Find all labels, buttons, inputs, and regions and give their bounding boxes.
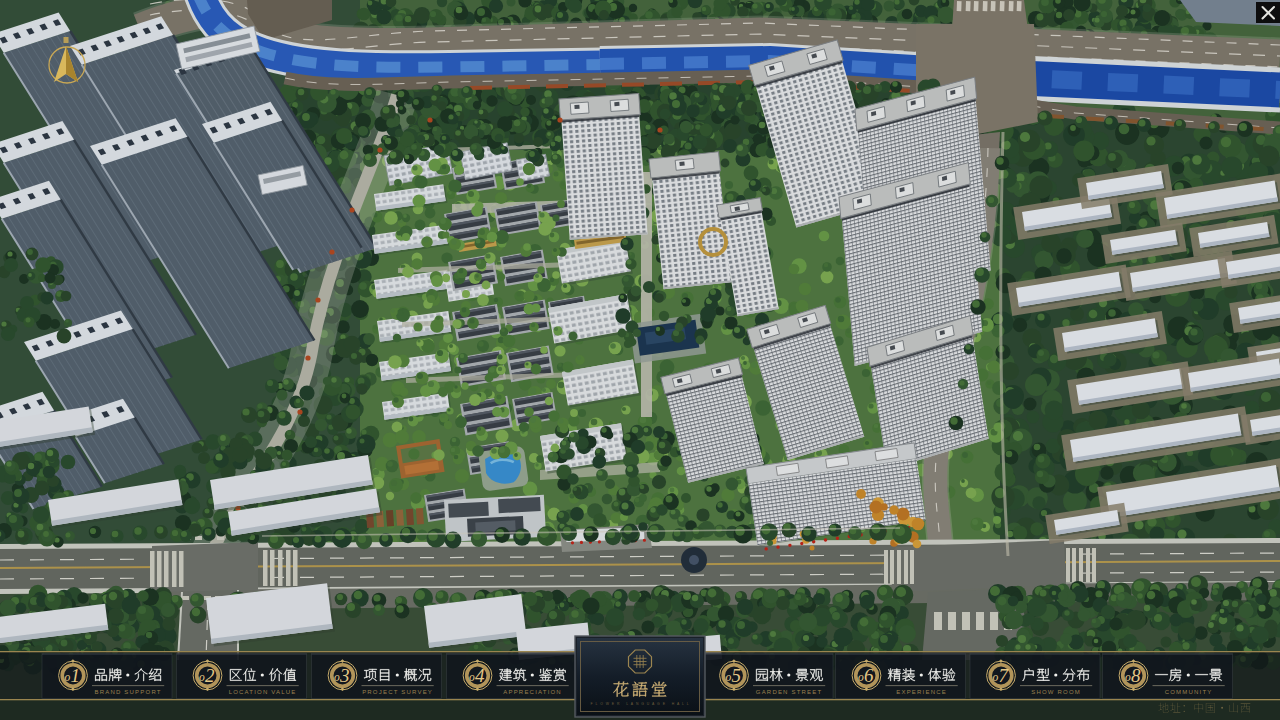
svg-text:PROJECT SURVEY: PROJECT SURVEY (362, 689, 433, 695)
svg-text:4: 4 (475, 665, 485, 686)
svg-text:BRAND SUPPORT: BRAND SUPPORT (95, 689, 162, 695)
svg-text:LOCATION VALUE: LOCATION VALUE (229, 689, 297, 695)
svg-text:COMMUNITY: COMMUNITY (1165, 689, 1213, 695)
svg-text:7: 7 (999, 665, 1010, 686)
svg-text:EXPERIENCE: EXPERIENCE (896, 689, 947, 695)
svg-text:6: 6 (864, 665, 874, 686)
svg-text:APPRECIATION: APPRECIATION (503, 689, 562, 695)
svg-text:2: 2 (205, 665, 215, 686)
svg-text:3: 3 (339, 665, 350, 686)
svg-text:1: 1 (71, 665, 81, 686)
svg-text:5: 5 (732, 665, 742, 686)
svg-text:GARDEN STREET: GARDEN STREET (756, 689, 823, 695)
svg-text:F L O W E R L A N G U A G E: F L O W E R L A N G U A G E H A L L (590, 702, 689, 706)
svg-text:8: 8 (1131, 665, 1141, 686)
svg-text:SHOW ROOM: SHOW ROOM (1031, 689, 1081, 695)
